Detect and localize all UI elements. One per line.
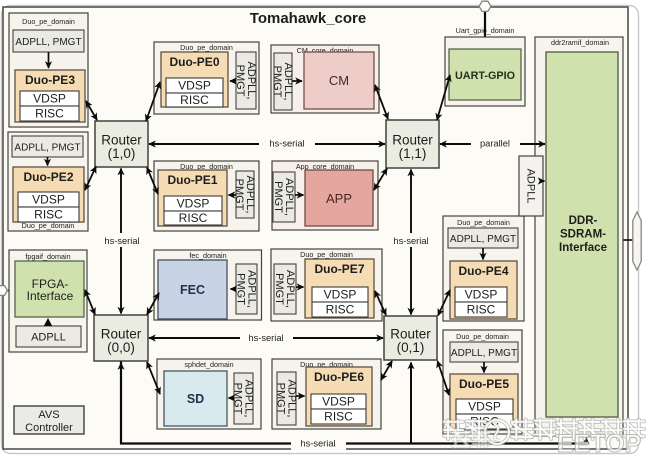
svg-text:Interface: Interface (27, 289, 74, 303)
svg-text:(0,1): (0,1) (397, 340, 425, 355)
svg-text:ADPLL,: ADPLL, (286, 380, 298, 418)
svg-text:DDR-: DDR- (569, 215, 598, 227)
svg-text:VDSP: VDSP (177, 197, 210, 211)
svg-text:Duo_pe_domain: Duo_pe_domain (180, 43, 233, 52)
svg-text:RISC: RISC (467, 303, 496, 317)
svg-text:Duo-PE2: Duo-PE2 (23, 170, 73, 184)
svg-text:hs-serial: hs-serial (248, 333, 283, 343)
svg-text:Duo-PE0: Duo-PE0 (169, 55, 219, 69)
svg-text:Duo_pe_domain: Duo_pe_domain (300, 250, 353, 259)
svg-text:Duo_pe_domain: Duo_pe_domain (22, 17, 75, 26)
svg-text:Duo-PE7: Duo-PE7 (314, 262, 364, 276)
svg-text:APP: APP (326, 191, 352, 206)
svg-text:ADPLL, PMGT: ADPLL, PMGT (450, 234, 516, 245)
svg-text:RISC: RISC (326, 303, 355, 317)
svg-text:Duo-PE4: Duo-PE4 (458, 264, 508, 278)
svg-text:ADPLL: ADPLL (31, 332, 66, 344)
svg-text:fpgaif_domain: fpgaif_domain (25, 252, 70, 261)
svg-text:ADPLL, PMGT: ADPLL, PMGT (451, 348, 517, 359)
svg-text:ADPLL,: ADPLL, (283, 178, 295, 216)
svg-text:UART-GPIO: UART-GPIO (455, 70, 515, 82)
svg-text:Uart_gpio_domain: Uart_gpio_domain (456, 26, 515, 35)
svg-text:ddr2ramif_domain: ddr2ramif_domain (551, 38, 609, 47)
svg-text:RISC: RISC (35, 107, 64, 121)
svg-text:Duo-PE3: Duo-PE3 (25, 73, 75, 87)
svg-text:Duo-PE6: Duo-PE6 (314, 370, 364, 384)
svg-text:CM: CM (329, 73, 349, 88)
svg-text:PMGT: PMGT (271, 66, 283, 98)
svg-text:hs-serial: hs-serial (269, 139, 304, 149)
svg-text:EETOP: EETOP (557, 430, 641, 457)
svg-text:(1,0): (1,0) (108, 146, 136, 161)
svg-text:ADPLL, PMGT: ADPLL, PMGT (15, 37, 81, 48)
svg-text:ADPLL,: ADPLL, (246, 270, 258, 308)
svg-text:FEC: FEC (180, 283, 205, 297)
svg-text:ADPLL,: ADPLL, (284, 270, 296, 308)
svg-text:(1,1): (1,1) (399, 146, 427, 161)
svg-text:parallel: parallel (480, 139, 510, 149)
svg-text:sphdet_domain: sphdet_domain (184, 360, 233, 369)
svg-text:hs-serial: hs-serial (393, 236, 428, 246)
svg-text:VDSP: VDSP (322, 395, 355, 409)
svg-text:ADPLL: ADPLL (524, 169, 536, 204)
svg-text:ADPLL,: ADPLL, (245, 62, 257, 100)
svg-text:AVS: AVS (38, 409, 59, 421)
svg-text:ADPLL,: ADPLL, (244, 176, 256, 214)
svg-text:VDSP: VDSP (33, 92, 66, 106)
svg-text:SD: SD (187, 392, 204, 406)
svg-text:RISC: RISC (34, 208, 63, 222)
svg-text:PMGT: PMGT (274, 383, 286, 415)
svg-text:VDSP: VDSP (32, 193, 65, 207)
svg-text:Controller: Controller (25, 422, 73, 434)
svg-text:PMGT: PMGT (273, 273, 285, 305)
svg-text:VDSP: VDSP (468, 400, 501, 414)
svg-text:fec_domain: fec_domain (189, 251, 226, 260)
svg-text:RISC: RISC (324, 410, 353, 424)
svg-text:Tomahawk_core: Tomahawk_core (250, 10, 366, 27)
svg-text:Interface: Interface (559, 242, 607, 254)
svg-text:SDRAM-: SDRAM- (560, 229, 606, 241)
svg-text:(0,0): (0,0) (107, 340, 135, 355)
svg-text:RISC: RISC (180, 93, 209, 107)
svg-text:VDSP: VDSP (465, 288, 498, 302)
svg-text:VDSP: VDSP (178, 79, 211, 93)
svg-text:hs-serial: hs-serial (300, 439, 335, 449)
svg-text:Duo_pe_domain: Duo_pe_domain (456, 332, 509, 341)
svg-text:RISC: RISC (179, 211, 208, 225)
svg-text:Duo_pe_domain: Duo_pe_domain (457, 218, 510, 227)
svg-text:PMGT: PMGT (272, 181, 284, 213)
svg-text:PMGT: PMGT (234, 273, 246, 305)
svg-text:Duo-PE1: Duo-PE1 (167, 173, 217, 187)
svg-text:VDSP: VDSP (324, 288, 357, 302)
svg-text:ADPLL, PMGT: ADPLL, PMGT (14, 143, 80, 154)
svg-text:hs-serial: hs-serial (104, 236, 139, 246)
svg-text:ADPLL,: ADPLL, (243, 380, 255, 418)
svg-text:Duo-PE5: Duo-PE5 (459, 377, 509, 391)
